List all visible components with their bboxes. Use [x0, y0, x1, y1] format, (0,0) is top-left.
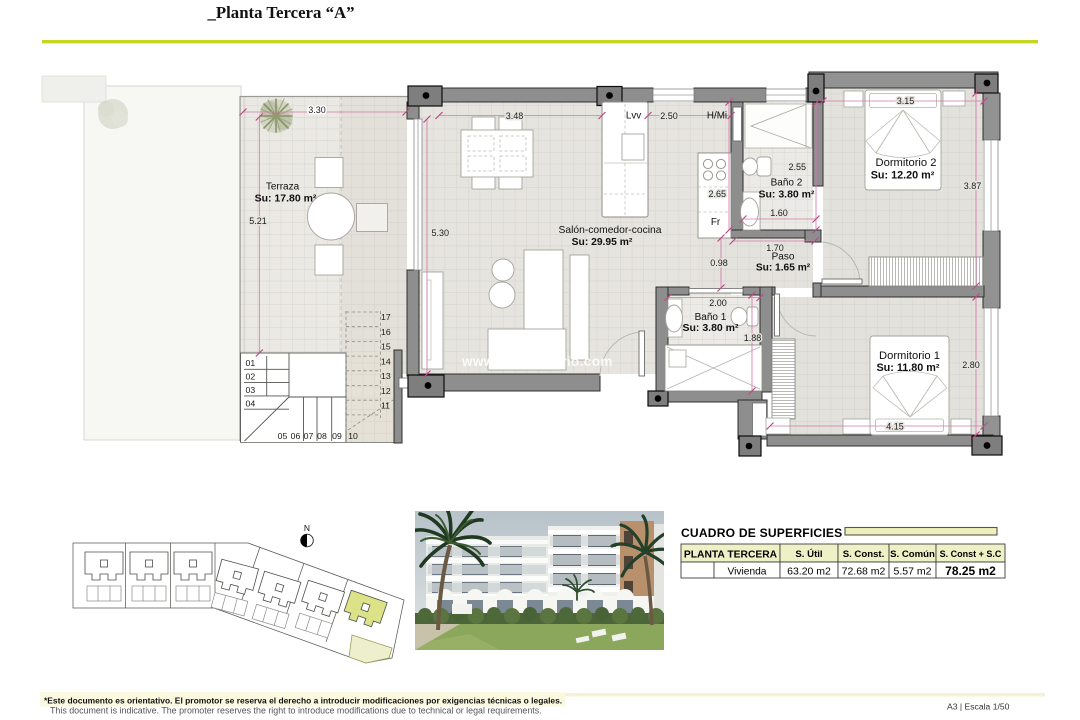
svg-text:01: 01: [246, 358, 256, 368]
svg-text:3.30: 3.30: [308, 105, 326, 115]
svg-text:10: 10: [348, 431, 358, 441]
svg-text:A3 | Escala 1/50: A3 | Escala 1/50: [947, 702, 1010, 712]
svg-text:2.00: 2.00: [709, 298, 727, 308]
svg-text:S. Útil: S. Útil: [795, 548, 822, 560]
svg-text:Su: 3.80 m²: Su: 3.80 m²: [758, 189, 815, 201]
svg-text:4.15: 4.15: [886, 422, 904, 432]
svg-text:Su: 3.80 m²: Su: 3.80 m²: [682, 322, 739, 334]
svg-text:15: 15: [381, 342, 391, 352]
svg-text:CUADRO DE SUPERFICIES: CUADRO DE SUPERFICIES: [681, 526, 842, 540]
svg-text:78.25 m2: 78.25 m2: [945, 564, 996, 578]
svg-text:Dormitorio 2: Dormitorio 2: [876, 157, 937, 169]
svg-text:3.48: 3.48: [506, 111, 524, 121]
svg-text:Su: 11.80 m²: Su: 11.80 m²: [876, 362, 939, 374]
svg-text:0.98: 0.98: [710, 258, 728, 268]
svg-text:Salón-comedor-cocina: Salón-comedor-cocina: [558, 225, 661, 236]
svg-text:2.50: 2.50: [660, 111, 678, 121]
svg-text:63.20 m2: 63.20 m2: [787, 566, 831, 578]
svg-text:This document is indicative. T: This document is indicative. The promote…: [50, 706, 542, 716]
svg-text:08: 08: [317, 431, 327, 441]
svg-text:5.21: 5.21: [249, 216, 267, 226]
svg-text:02: 02: [246, 372, 256, 382]
svg-text:_Planta Tercera “A”: _Planta Tercera “A”: [207, 3, 355, 22]
svg-text:www.inmobiliario.com: www.inmobiliario.com: [461, 354, 613, 369]
svg-text:06: 06: [291, 431, 301, 441]
svg-text:Fr: Fr: [711, 217, 721, 228]
svg-text:09: 09: [332, 431, 342, 441]
svg-text:Lvv: Lvv: [626, 111, 641, 122]
svg-text:1.88: 1.88: [744, 333, 762, 343]
svg-text:Su: 12.20 m²: Su: 12.20 m²: [871, 170, 935, 182]
svg-text:Su: 29.95 m²: Su: 29.95 m²: [572, 237, 633, 248]
svg-text:5.57 m2: 5.57 m2: [894, 566, 932, 578]
svg-text:Su: 17.80 m²: Su: 17.80 m²: [255, 193, 317, 205]
svg-text:S. Const.: S. Const.: [843, 549, 885, 560]
svg-text:3.87: 3.87: [964, 181, 982, 191]
svg-text:16: 16: [381, 327, 391, 337]
svg-text:Baño 2: Baño 2: [771, 178, 803, 189]
svg-text:Dormitorio 1: Dormitorio 1: [879, 350, 940, 362]
svg-text:14: 14: [381, 357, 391, 367]
svg-text:2.65: 2.65: [708, 189, 726, 199]
svg-text:11: 11: [381, 401, 390, 411]
svg-text:2.80: 2.80: [962, 360, 980, 370]
svg-text:PLANTA TERCERA: PLANTA TERCERA: [684, 550, 778, 561]
svg-text:05: 05: [278, 431, 288, 441]
svg-text:17: 17: [381, 312, 391, 322]
svg-text:H/Mi: H/Mi: [707, 111, 727, 122]
svg-text:13: 13: [381, 371, 391, 381]
svg-text:3.15: 3.15: [897, 96, 915, 106]
svg-text:04: 04: [246, 399, 256, 409]
svg-text:72.68 m2: 72.68 m2: [842, 566, 886, 578]
svg-text:12: 12: [381, 386, 391, 396]
svg-text:S. Común: S. Común: [890, 549, 935, 560]
svg-text:03: 03: [246, 385, 256, 395]
svg-text:*Este documento es orientativo: *Este documento es orientativo. El promo…: [44, 696, 562, 706]
svg-text:1.60: 1.60: [770, 208, 788, 218]
svg-text:S. Const + S.C: S. Const + S.C: [940, 549, 1002, 559]
svg-text:07: 07: [304, 431, 314, 441]
svg-text:5.30: 5.30: [432, 228, 450, 238]
svg-text:Vivienda: Vivienda: [728, 567, 767, 578]
svg-text:N: N: [304, 523, 310, 533]
svg-text:Paso: Paso: [772, 252, 795, 263]
svg-text:2.55: 2.55: [788, 162, 806, 172]
svg-text:Terraza: Terraza: [266, 182, 300, 193]
svg-text:Su: 1.65 m²: Su: 1.65 m²: [756, 263, 811, 274]
